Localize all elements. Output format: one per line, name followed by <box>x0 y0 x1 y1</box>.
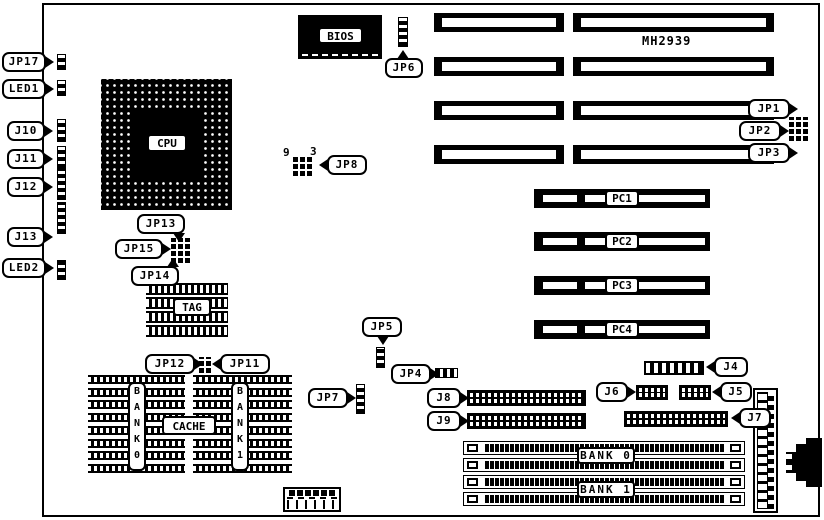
j8-connector <box>467 390 586 406</box>
label-jp14: JP14 <box>131 266 179 286</box>
j5-connector <box>679 385 711 400</box>
callout-pointer <box>712 386 721 398</box>
label-jp17: JP17 <box>2 52 46 72</box>
j12-header <box>57 169 66 200</box>
j11-header <box>57 146 66 169</box>
callout-pointer <box>430 368 439 380</box>
label-j5: J5 <box>720 382 752 402</box>
callout-pointer <box>162 243 171 255</box>
pc1-label: PC1 <box>605 190 639 207</box>
bios-label: BIOS <box>318 27 363 44</box>
isa-slot <box>573 145 774 164</box>
callout-pointer <box>44 153 53 165</box>
power-header <box>753 388 778 513</box>
jp8-pin9-label: 9 <box>283 146 290 159</box>
label-jp7: JP7 <box>308 388 348 408</box>
isa-slot <box>434 145 564 164</box>
led1-header <box>57 80 66 96</box>
callout-pointer <box>789 103 798 115</box>
jp6-header <box>398 17 408 47</box>
bank1-label: BANK 1 <box>577 481 635 498</box>
label-jp6: JP6 <box>385 58 423 78</box>
j6-connector <box>636 385 668 400</box>
label-j6: J6 <box>596 382 628 402</box>
pc4-label: PC4 <box>605 321 639 338</box>
callout-pointer <box>789 147 798 159</box>
led2-header <box>57 260 66 280</box>
callout-pointer <box>44 231 53 243</box>
label-jp15: JP15 <box>115 239 163 259</box>
callout-pointer <box>44 181 53 193</box>
callout-pointer <box>212 358 221 370</box>
isa-slot <box>573 57 774 76</box>
callout-pointer <box>173 233 185 242</box>
isa-slot <box>434 101 564 120</box>
label-j10: J10 <box>7 121 45 141</box>
keyboard-connector <box>806 438 822 487</box>
pc3-label: PC3 <box>605 277 639 294</box>
label-led2: LED2 <box>2 258 46 278</box>
callout-pointer <box>45 83 54 95</box>
label-j9: J9 <box>427 411 461 431</box>
jp7-header <box>356 384 365 414</box>
j9-connector <box>467 413 586 429</box>
label-jp4: JP4 <box>391 364 431 384</box>
callout-pointer <box>397 50 409 59</box>
callout-pointer <box>731 412 740 424</box>
bios-pins <box>302 54 378 56</box>
bank0-label: BANK 0 <box>577 447 635 464</box>
label-jp2: JP2 <box>739 121 781 141</box>
label-j7: J7 <box>739 408 771 428</box>
tag-chip-row <box>146 325 228 337</box>
j4-connector <box>644 361 704 375</box>
callout-pointer <box>319 159 328 171</box>
tag-label: TAG <box>173 298 211 316</box>
label-jp13: JP13 <box>137 214 185 234</box>
label-led1: LED1 <box>2 79 46 99</box>
cpu-label: CPU <box>147 134 187 152</box>
callout-pointer <box>780 125 789 137</box>
jp5-header <box>376 347 385 368</box>
keyboard-connector-notch <box>786 465 792 470</box>
isa-slot <box>434 13 564 32</box>
keyboard-connector-notch <box>786 454 792 459</box>
callout-pointer <box>167 258 179 267</box>
isa-slot <box>434 57 564 76</box>
jp1-jp2-jp3-block <box>788 116 809 142</box>
j7-connector <box>624 411 728 427</box>
label-jp1: JP1 <box>748 99 790 119</box>
callout-pointer <box>706 361 715 373</box>
j13-header <box>57 202 66 234</box>
label-jp5: JP5 <box>362 317 402 337</box>
callout-pointer <box>45 262 54 274</box>
jp17-header <box>57 54 66 70</box>
cache-label: CACHE <box>162 416 216 435</box>
callout-pointer <box>460 415 469 427</box>
label-jp11: JP11 <box>220 354 270 374</box>
j10-header <box>57 119 66 142</box>
power-connector <box>283 487 341 512</box>
isa-slot <box>573 101 774 120</box>
cache-bank0-label: B A N K 0 <box>128 382 146 471</box>
callout-pointer <box>627 386 636 398</box>
label-j11: J11 <box>7 149 45 169</box>
label-jp3: JP3 <box>748 143 790 163</box>
callout-pointer <box>44 125 53 137</box>
callout-pointer <box>347 392 356 404</box>
label-j13: J13 <box>7 227 45 247</box>
label-jp8: JP8 <box>327 155 367 175</box>
callout-pointer <box>377 336 389 345</box>
label-jp12: JP12 <box>145 354 195 374</box>
motherboard-diagram: JP17 LED1 J10 J11 J12 J13 LED2 CPU BIOS … <box>0 0 824 520</box>
label-j4: J4 <box>714 357 748 377</box>
pc2-label: PC2 <box>605 233 639 250</box>
cache-bank1-label: B A N K 1 <box>231 382 249 471</box>
label-j12: J12 <box>7 177 45 197</box>
isa-slot <box>573 13 774 32</box>
callout-pointer <box>460 392 469 404</box>
callout-pointer <box>194 358 203 370</box>
jp8-block <box>292 155 314 177</box>
callout-pointer <box>45 56 54 68</box>
label-j8: J8 <box>427 388 461 408</box>
board-model-text: MH2939 <box>642 34 691 48</box>
